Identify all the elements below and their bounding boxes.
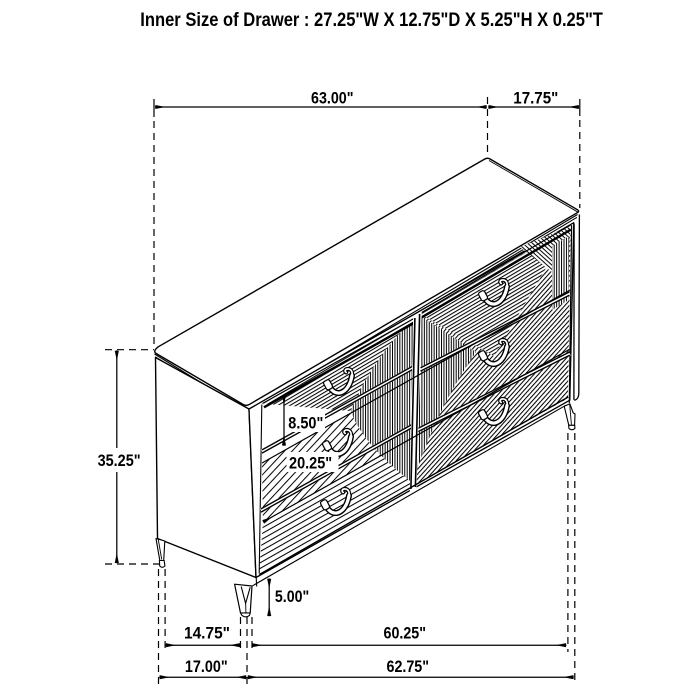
svg-text:14.75": 14.75" [184,625,230,643]
svg-text:8.50": 8.50" [288,415,323,433]
svg-text:Inner Size of Drawer : 27.25"W: Inner Size of Drawer : 27.25"W X 12.75"D… [140,10,603,31]
svg-text:62.75": 62.75" [387,658,430,676]
svg-text:17.00": 17.00" [185,658,228,676]
svg-text:17.75": 17.75" [513,89,558,107]
svg-text:5.00": 5.00" [275,588,309,606]
svg-text:20.25": 20.25" [289,454,332,472]
svg-text:63.00": 63.00" [311,89,354,107]
svg-text:60.25": 60.25" [384,625,427,643]
svg-text:35.25": 35.25" [98,452,141,470]
